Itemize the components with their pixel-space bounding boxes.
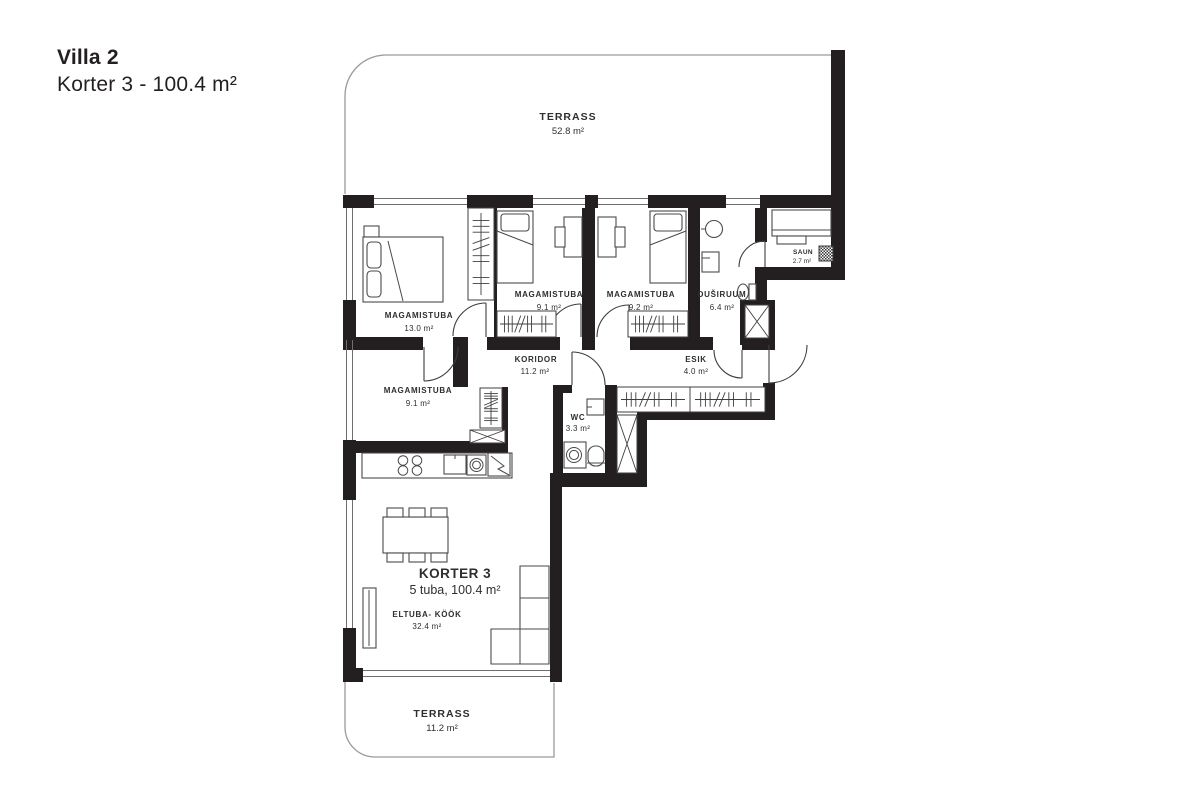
room-area: 9.1 m² <box>406 399 431 408</box>
terrace-bottom-area: 11.2 m² <box>426 723 458 734</box>
bedroom-13-furniture <box>363 226 443 302</box>
wall <box>553 385 572 393</box>
toilet-tank <box>749 284 756 300</box>
pillow <box>367 271 381 297</box>
window <box>533 199 585 205</box>
kitchen-furniture <box>362 453 512 478</box>
sauna-bench <box>772 210 831 236</box>
wall <box>343 440 356 500</box>
wall <box>648 195 726 208</box>
room-label: MAGAMISTUBA <box>607 290 676 299</box>
door-arc <box>572 352 605 385</box>
wall <box>343 668 363 682</box>
apartment-label: KORTER 3 <box>419 566 491 581</box>
wall <box>637 412 775 420</box>
door-arc <box>597 305 629 337</box>
window <box>726 199 760 205</box>
chair <box>431 553 447 562</box>
window <box>374 199 467 205</box>
wall <box>755 267 767 305</box>
chair <box>555 227 565 247</box>
room-label: ESIK <box>685 355 706 364</box>
door-arc <box>739 241 765 267</box>
room-area: 2.7 m² <box>793 258 812 265</box>
wall <box>582 208 595 337</box>
room-area: 6.4 m² <box>710 303 735 312</box>
door-arc <box>453 303 486 337</box>
room-label: ELTUBA- KÖÖK <box>392 610 461 619</box>
room-area: 11.2 m² <box>521 367 550 376</box>
chair <box>387 553 403 562</box>
room-label: DUŠIRUUM <box>698 290 747 299</box>
desk <box>598 217 616 257</box>
shower-icon <box>702 252 719 272</box>
window <box>598 199 648 205</box>
desk <box>564 217 582 257</box>
sink-icon <box>706 221 723 238</box>
room-area: 32.4 m² <box>412 622 441 631</box>
wall <box>453 337 468 387</box>
wall <box>467 195 533 208</box>
wall <box>553 385 563 487</box>
terrace-top-label: TERRASS <box>539 111 596 123</box>
room-area: 9.1 m² <box>537 303 562 312</box>
wall <box>343 195 374 208</box>
wall <box>755 208 767 242</box>
room-area: 4.0 m² <box>684 367 709 376</box>
wall <box>487 337 560 350</box>
window <box>347 208 353 300</box>
bedroom-91-top-furniture <box>497 211 582 283</box>
wall <box>343 300 356 340</box>
wc-fixtures <box>564 399 605 468</box>
wall <box>585 195 598 208</box>
chair <box>409 553 425 562</box>
room-label: MAGAMISTUBA <box>515 290 584 299</box>
terrace-bottom-label: TERRASS <box>413 708 470 720</box>
wall <box>605 385 617 475</box>
wall <box>630 337 713 350</box>
sauna-heater-icon <box>819 246 833 261</box>
wall <box>582 337 595 350</box>
wall <box>688 208 700 337</box>
window <box>363 671 550 677</box>
chair <box>409 508 425 517</box>
shaft-x-icon <box>617 415 637 473</box>
bedroom-92-furniture <box>598 211 686 283</box>
floor-plan-svg: TERRASS 52.8 m² MAGAMISTUBA 13.0 m² MAGA… <box>0 0 1180 788</box>
apartment-summary: 5 tuba, 100.4 m² <box>409 583 500 597</box>
chair <box>387 508 403 517</box>
nightstand <box>364 226 379 237</box>
room-area: 13.0 m² <box>404 324 433 333</box>
terrace-top-area: 52.8 m² <box>552 126 584 137</box>
window <box>347 500 353 628</box>
pillow <box>367 242 381 268</box>
window <box>347 340 353 440</box>
room-label: MAGAMISTUBA <box>384 386 453 395</box>
pillow <box>501 214 529 231</box>
wall <box>550 473 647 487</box>
chair <box>431 508 447 517</box>
entrance-door-arc <box>769 345 807 383</box>
room-label: KORIDOR <box>515 355 558 364</box>
room-label: SAUN <box>793 249 813 256</box>
sauna-step <box>777 236 806 244</box>
terrace-top-outline <box>345 55 832 194</box>
room-label: WC <box>571 413 586 422</box>
shaft-x-icon <box>745 305 769 338</box>
washing-machine-icon <box>564 442 586 468</box>
door-arc <box>424 347 458 381</box>
chair <box>615 227 625 247</box>
shaft-x-icon <box>470 430 505 443</box>
room-label: MAGAMISTUBA <box>385 311 454 320</box>
dining-table <box>383 517 448 553</box>
dusiruum-fixtures <box>701 221 756 301</box>
wall <box>755 267 845 280</box>
door-arc <box>714 350 742 378</box>
room-area: 9.2 m² <box>629 303 654 312</box>
pillow <box>654 214 682 231</box>
wall <box>550 473 562 682</box>
room-area: 3.3 m² <box>566 424 591 433</box>
